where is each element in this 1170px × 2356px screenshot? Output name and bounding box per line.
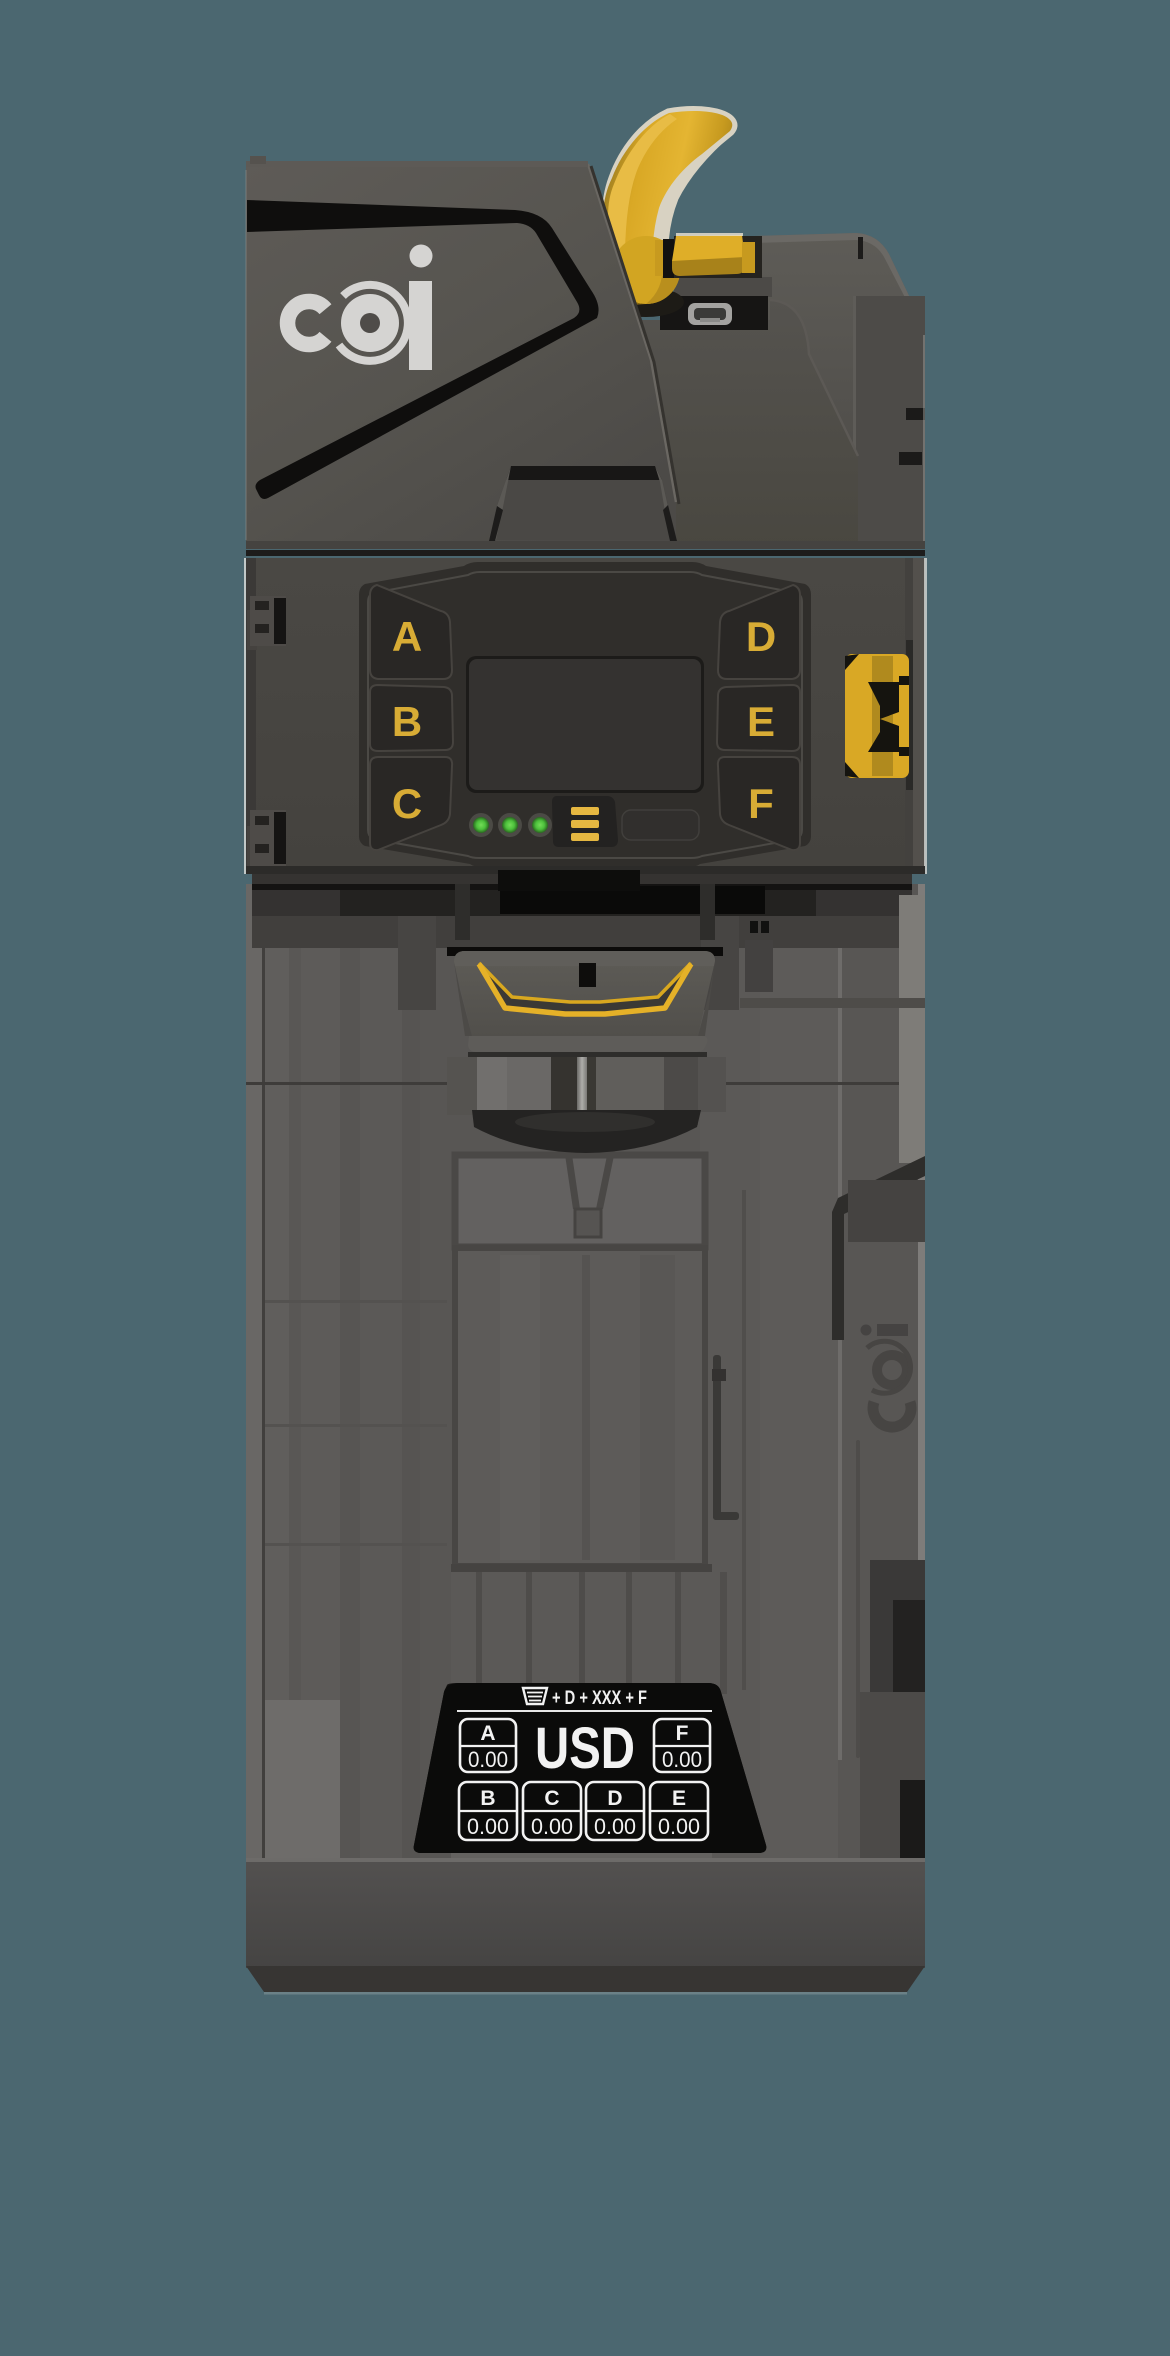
svg-text:0.00: 0.00 (468, 1747, 508, 1772)
svg-text:D: D (607, 1787, 622, 1810)
svg-text:0.00: 0.00 (467, 1814, 509, 1839)
svg-text:B: B (392, 698, 422, 745)
svg-text:C: C (544, 1787, 559, 1810)
svg-text:0.00: 0.00 (662, 1747, 702, 1772)
svg-text:USD: USD (535, 1716, 635, 1781)
svg-text:+ D + XXX + F: + D + XXX + F (552, 1688, 647, 1709)
svg-text:A: A (392, 613, 422, 660)
svg-text:0.00: 0.00 (658, 1814, 700, 1839)
svg-text:D: D (746, 613, 776, 660)
svg-text:B: B (480, 1787, 495, 1810)
svg-text:E: E (747, 698, 775, 745)
svg-text:F: F (676, 1722, 689, 1745)
svg-text:E: E (672, 1787, 686, 1810)
svg-text:0.00: 0.00 (594, 1814, 636, 1839)
svg-text:0.00: 0.00 (531, 1814, 573, 1839)
svg-text:C: C (392, 780, 422, 827)
svg-text:F: F (748, 780, 774, 827)
svg-text:A: A (480, 1722, 495, 1745)
